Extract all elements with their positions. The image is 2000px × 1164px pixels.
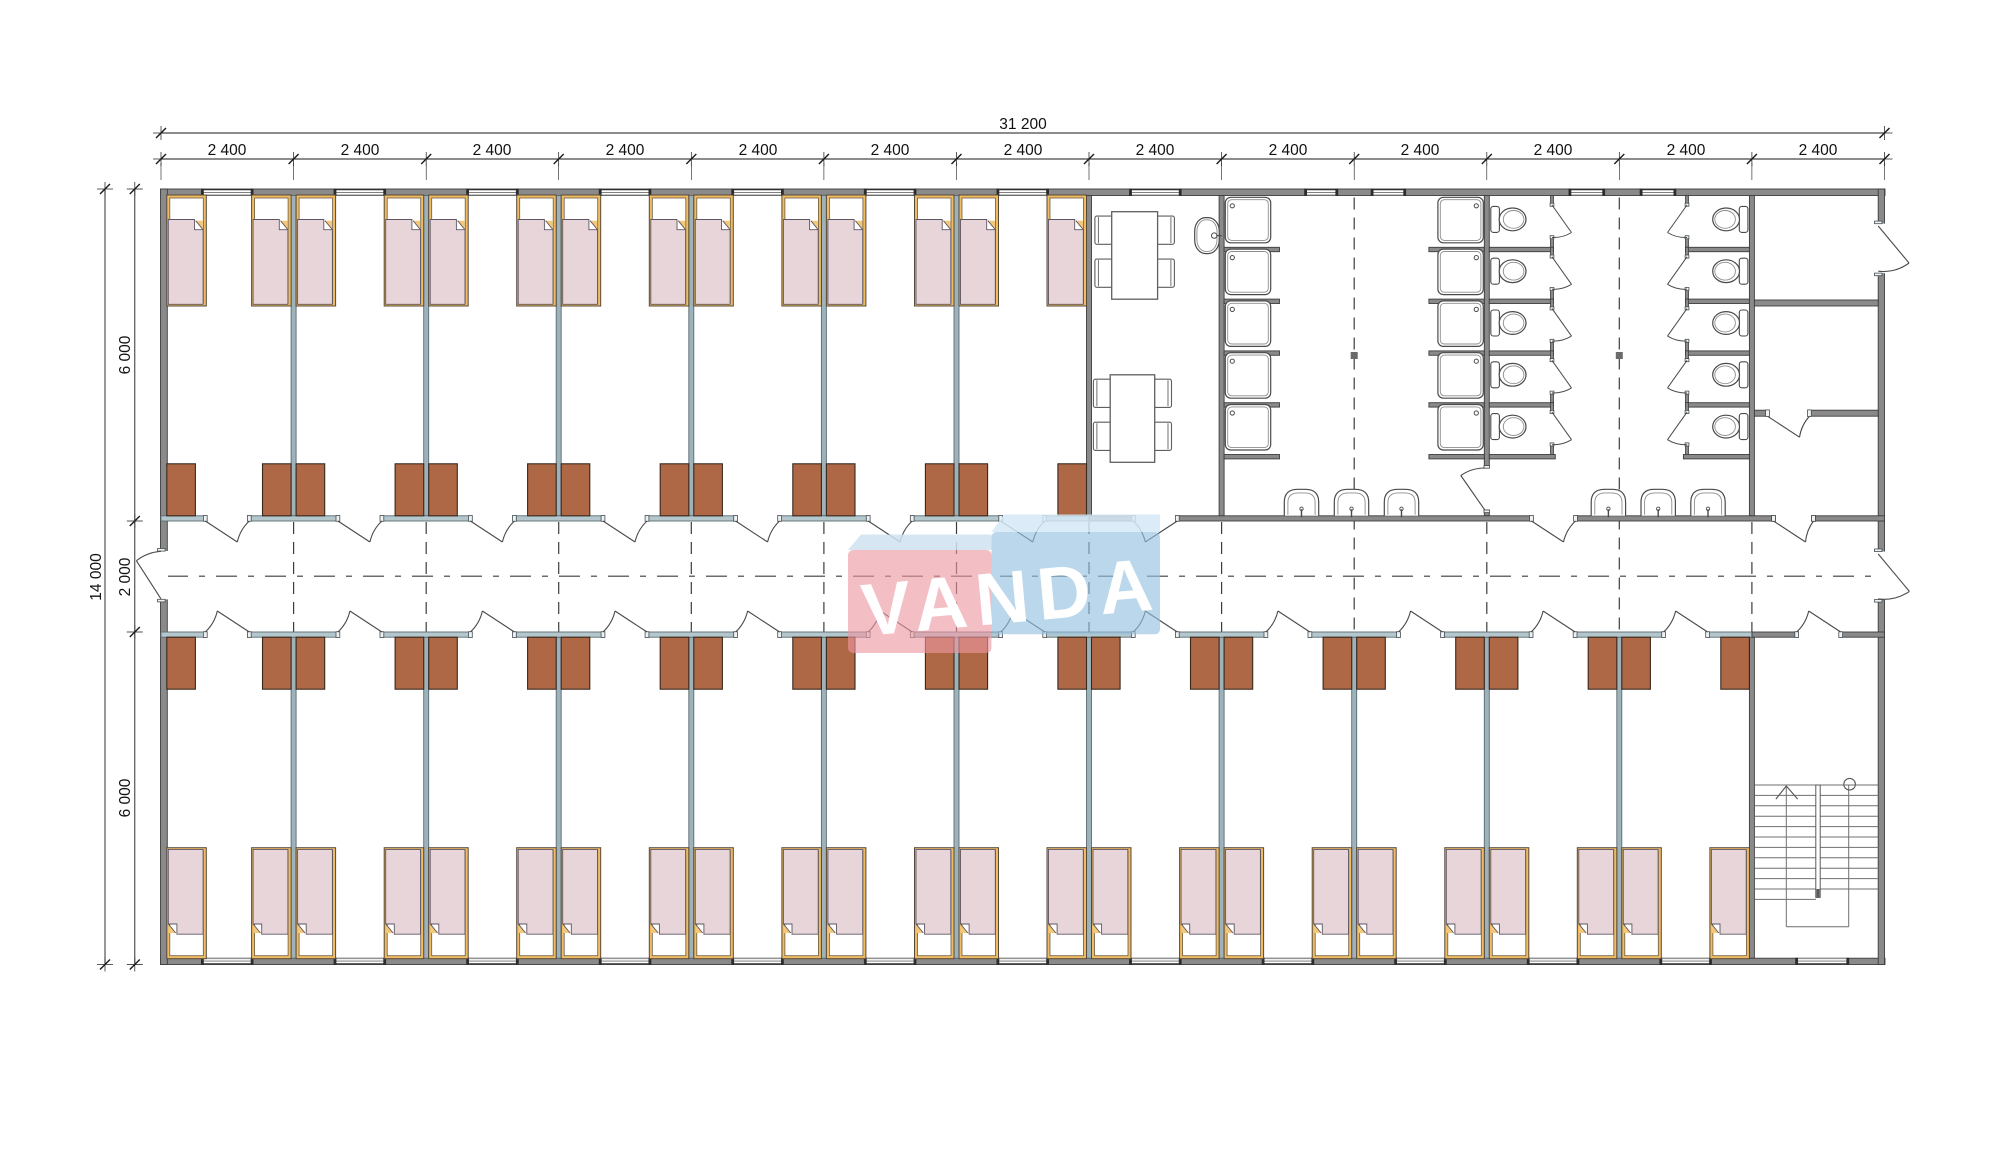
svg-text:2 400: 2 400	[1401, 142, 1440, 159]
svg-text:6 000: 6 000	[117, 778, 134, 817]
svg-text:31 200: 31 200	[999, 116, 1047, 133]
svg-text:2 400: 2 400	[208, 142, 247, 159]
svg-text:2 400: 2 400	[606, 142, 645, 159]
svg-text:2 400: 2 400	[473, 142, 512, 159]
svg-text:2 400: 2 400	[1004, 142, 1043, 159]
svg-text:2 000: 2 000	[117, 557, 134, 596]
svg-text:2 400: 2 400	[1534, 142, 1573, 159]
svg-text:2 400: 2 400	[1799, 142, 1838, 159]
svg-text:2 400: 2 400	[1667, 142, 1706, 159]
svg-text:2 400: 2 400	[341, 142, 380, 159]
svg-text:2 400: 2 400	[1269, 142, 1308, 159]
svg-text:2 400: 2 400	[739, 142, 778, 159]
svg-text:2 400: 2 400	[871, 142, 910, 159]
svg-text:6 000: 6 000	[117, 335, 134, 374]
svg-text:14 000: 14 000	[88, 553, 105, 601]
svg-text:2 400: 2 400	[1136, 142, 1175, 159]
